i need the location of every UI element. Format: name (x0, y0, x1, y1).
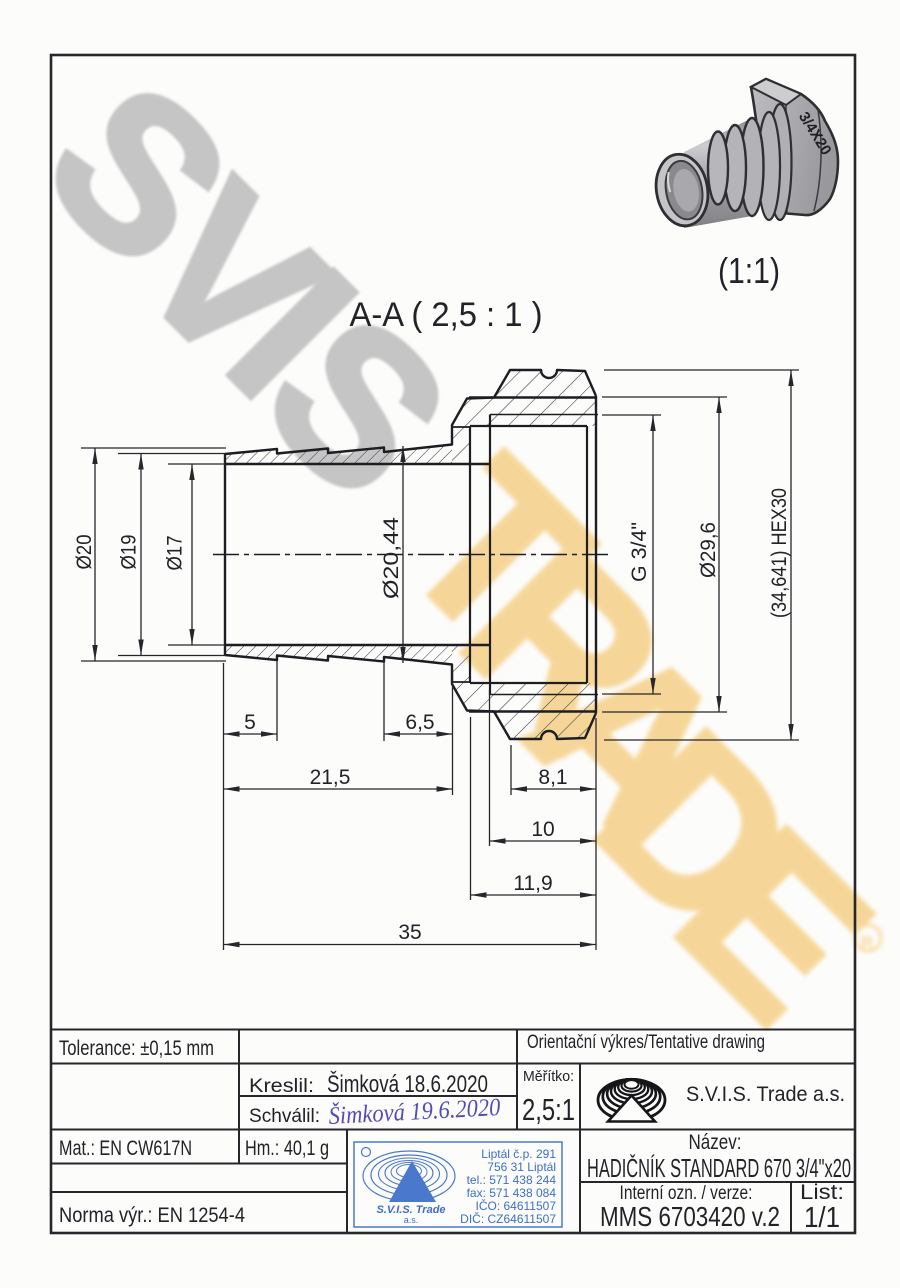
svg-text:Ø17: Ø17 (164, 536, 187, 571)
svg-text:S.V.I.S. Trade a.s.: S.V.I.S. Trade a.s. (686, 1083, 845, 1106)
svg-text:Ø20: Ø20 (73, 535, 96, 570)
svg-text:21,5: 21,5 (310, 766, 351, 789)
svg-text:a.s.: a.s. (404, 1215, 419, 1225)
svg-text:Název:: Název: (689, 1131, 742, 1154)
svg-text:DIČ: CZ64611507: DIČ: CZ64611507 (460, 1211, 556, 1226)
svg-text:Norma výr.: EN 1254-4: Norma výr.: EN 1254-4 (59, 1204, 245, 1227)
svg-text:Šimková 18.6.2020: Šimková 18.6.2020 (327, 1070, 488, 1098)
svg-text:Orientační výkres/Tentative dr: Orientační výkres/Tentative drawing (527, 1032, 765, 1053)
svg-text:(1:1): (1:1) (718, 250, 780, 291)
svg-text:Tolerance: ±0,15 mm: Tolerance: ±0,15 mm (59, 1037, 214, 1060)
svg-text:Kreslil:: Kreslil: (249, 1076, 314, 1097)
svg-text:tel.: 571 438 244: tel.: 571 438 244 (467, 1173, 557, 1187)
svg-text:HADIČNÍK STANDARD 670 3/4"x20: HADIČNÍK STANDARD 670 3/4"x20 (587, 1153, 851, 1183)
svg-text:Ø29,6: Ø29,6 (697, 522, 720, 578)
svg-text:11,9: 11,9 (513, 872, 552, 895)
svg-text:G 3/4": G 3/4" (628, 522, 651, 582)
svg-text:Liptál č.p. 291: Liptál č.p. 291 (481, 1147, 556, 1161)
svg-text:35: 35 (398, 921, 421, 944)
svg-text:R: R (861, 933, 873, 952)
svg-text:10: 10 (531, 818, 554, 841)
svg-text:Mat.: EN CW617N: Mat.: EN CW617N (59, 1137, 192, 1160)
svg-text:Šimková 19.6.2020: Šimková 19.6.2020 (328, 1093, 502, 1130)
svg-text:MMS 6703420 v.2: MMS 6703420 v.2 (600, 1201, 780, 1232)
svg-text:IČO: 64611507: IČO: 64611507 (475, 1198, 556, 1213)
svg-text:8,1: 8,1 (538, 766, 567, 789)
svg-text:5: 5 (244, 711, 256, 734)
svg-text:Schválil:: Schválil: (249, 1106, 320, 1127)
svg-text:Hm.: 40,1 g: Hm.: 40,1 g (245, 1137, 329, 1160)
svg-text:2,5:1: 2,5:1 (522, 1092, 575, 1127)
svg-text:756 31 Liptál: 756 31 Liptál (487, 1160, 556, 1174)
svg-text:List:: List: (800, 1181, 844, 1204)
svg-text:A-A ( 2,5 : 1 ): A-A ( 2,5 : 1 ) (350, 296, 543, 334)
svg-text:(34,641) HEX30: (34,641) HEX30 (768, 488, 791, 618)
svg-text:Ø20,44: Ø20,44 (380, 517, 403, 599)
svg-text:fax: 571 438 084: fax: 571 438 084 (467, 1186, 557, 1200)
svg-text:Měřítko:: Měřítko: (523, 1069, 574, 1085)
svg-text:1/1: 1/1 (804, 1202, 840, 1234)
svg-text:Ø19: Ø19 (118, 535, 141, 570)
svg-text:6,5: 6,5 (405, 711, 434, 734)
